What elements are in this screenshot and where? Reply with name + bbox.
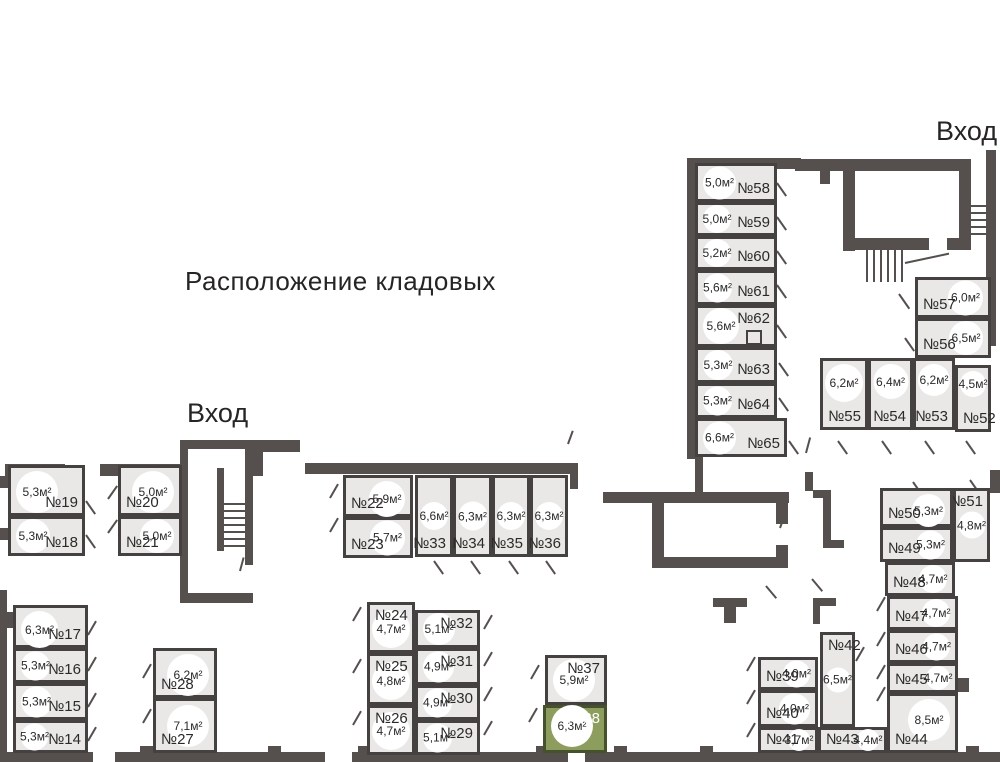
storage-unit-46[interactable]: 4,7м²№46 xyxy=(887,630,958,663)
unit-number: №38 xyxy=(567,711,600,726)
area-text: 6,5м² xyxy=(823,673,852,687)
unit-number: №14 xyxy=(48,732,81,747)
storage-unit-62[interactable]: 5,6м²№62 xyxy=(695,305,777,347)
door-swing xyxy=(778,362,789,376)
door-swing xyxy=(746,690,756,705)
storage-unit-63[interactable]: 5,3м²№63 xyxy=(695,347,777,383)
storage-unit-36[interactable]: 6,3м²№36 xyxy=(530,475,568,557)
area-badge: 5,3м² xyxy=(703,386,732,415)
unit-number: №60 xyxy=(737,249,770,264)
unit-number: №26 xyxy=(375,711,408,726)
door-swing xyxy=(142,664,152,679)
storage-unit-45[interactable]: 4,7м²№45 xyxy=(887,663,958,693)
door-swing xyxy=(329,484,339,499)
wall xyxy=(217,468,224,551)
storage-unit-49[interactable]: 5,3м²№49 xyxy=(880,527,953,562)
area-badge: 5,0м² xyxy=(703,205,731,233)
wall xyxy=(0,752,93,762)
unit-number: №61 xyxy=(737,284,770,299)
door-swing xyxy=(329,518,339,533)
area-badge: 5,3м² xyxy=(21,651,50,680)
storage-unit-39[interactable]: 4,0м²№39 xyxy=(758,657,818,690)
unit-number: №40 xyxy=(766,706,799,721)
storage-unit-50[interactable]: 5,3м²№50 xyxy=(880,488,953,527)
wall xyxy=(570,463,578,489)
door-swing xyxy=(142,709,152,724)
area-text: 6,3м² xyxy=(535,509,564,523)
unit-number: №29 xyxy=(440,726,473,741)
unit-number: №53 xyxy=(915,409,948,424)
door-swing xyxy=(567,431,574,445)
area-text: 5,3м² xyxy=(22,695,51,709)
wall xyxy=(823,540,844,548)
door-swing xyxy=(876,597,886,612)
door-swing xyxy=(876,665,886,680)
wall xyxy=(115,752,325,762)
door-swing xyxy=(876,687,886,702)
storage-unit-17[interactable]: 6,3м²№17 xyxy=(13,605,88,648)
unit-number: №63 xyxy=(737,362,770,377)
wall xyxy=(957,678,969,692)
door-swing xyxy=(530,665,540,680)
door-symbol xyxy=(746,330,762,345)
storage-unit-26[interactable]: 4,7м²№26 xyxy=(367,705,415,755)
unit-number: №36 xyxy=(528,536,561,551)
stairs xyxy=(962,205,991,239)
area-text: 6,5м² xyxy=(952,331,981,345)
door-swing xyxy=(483,687,493,702)
wall xyxy=(713,598,747,607)
area-badge: 6,3м² xyxy=(458,502,487,531)
door-swing xyxy=(87,657,97,672)
area-badge: 6,5м² xyxy=(825,667,850,692)
unit-number: №19 xyxy=(45,495,78,510)
door-swing xyxy=(905,253,949,264)
door-swing xyxy=(904,337,915,351)
wall xyxy=(140,746,153,753)
unit-number: №42 xyxy=(828,638,861,653)
area-badge: 6,3м² xyxy=(497,502,525,530)
door-swing xyxy=(811,578,823,592)
area-text: 5,3м² xyxy=(21,659,50,673)
area-text: 5,0м² xyxy=(703,212,732,226)
wall xyxy=(180,440,253,449)
unit-number: №34 xyxy=(452,536,485,551)
wall xyxy=(614,746,627,753)
door-swing xyxy=(483,652,493,667)
storage-unit-15[interactable]: 5,3м²№15 xyxy=(13,683,88,720)
door-swing xyxy=(776,284,787,298)
storage-unit-60[interactable]: 5,2м²№60 xyxy=(695,236,777,270)
wall xyxy=(820,598,836,606)
unit-number: №51 xyxy=(950,494,983,509)
door-swing xyxy=(87,693,97,708)
storage-unit-23[interactable]: 5,7м²№23 xyxy=(343,517,413,558)
door-swing xyxy=(87,727,97,742)
unit-number: №46 xyxy=(895,642,928,657)
area-badge: 4,7м² xyxy=(926,666,950,690)
area-text: 5,3м² xyxy=(704,358,733,372)
storage-unit-44[interactable]: 8,5м²№44 xyxy=(887,693,958,753)
door-swing xyxy=(776,216,787,230)
unit-number: №31 xyxy=(440,654,473,669)
unit-number: №64 xyxy=(737,397,770,412)
storage-unit-31[interactable]: 4,9м²№31 xyxy=(415,648,480,685)
area-text: 5,0м² xyxy=(705,176,734,190)
wall xyxy=(805,472,813,491)
wall xyxy=(823,490,831,541)
door-swing xyxy=(239,557,245,571)
wall xyxy=(813,598,820,624)
storage-unit-30[interactable]: 4,9м²№30 xyxy=(415,685,480,720)
area-badge: 4,8м² xyxy=(958,512,985,539)
storage-unit-24[interactable]: 4,7м²№24 xyxy=(367,602,415,653)
storage-unit-19[interactable]: 5,3м²№19 xyxy=(8,465,85,516)
door-swing xyxy=(746,657,756,672)
entrance-label-top-right: Вход xyxy=(936,116,997,147)
storage-unit-37[interactable]: 5,9м²№37 xyxy=(545,655,607,705)
unit-number: №15 xyxy=(48,699,81,714)
area-text: 5,6м² xyxy=(703,281,732,295)
unit-number: №55 xyxy=(828,409,861,424)
unit-number: №56 xyxy=(923,337,956,352)
door-swing xyxy=(805,437,811,453)
door-swing xyxy=(837,440,848,454)
storage-unit-59[interactable]: 5,0м²№59 xyxy=(695,202,777,236)
page-title: Расположение кладовых xyxy=(185,266,496,297)
door-swing xyxy=(776,324,787,338)
unit-number: №65 xyxy=(747,436,780,451)
unit-number: №20 xyxy=(126,495,159,510)
wall xyxy=(990,470,1000,493)
storage-unit-29[interactable]: 5,1м²№29 xyxy=(415,720,480,755)
area-text: 8,5м² xyxy=(915,713,944,727)
door-swing xyxy=(778,397,789,411)
unit-number: №18 xyxy=(45,535,78,550)
door-swing xyxy=(776,182,787,196)
area-text: 6,2м² xyxy=(920,373,949,387)
storage-unit-40[interactable]: 4,0м²№40 xyxy=(758,690,818,727)
door-swing xyxy=(483,721,493,736)
storage-unit-18[interactable]: 5,3м²№18 xyxy=(8,516,85,556)
unit-number: №54 xyxy=(873,409,906,424)
area-text: 6,3м² xyxy=(497,509,526,523)
storage-unit-43[interactable]: 4,4м²№43 xyxy=(818,727,887,753)
door-swing xyxy=(924,440,935,454)
unit-number: №48 xyxy=(893,575,926,590)
unit-number: №57 xyxy=(923,297,956,312)
wall xyxy=(724,607,736,623)
storage-unit-34[interactable]: 6,3м²№34 xyxy=(453,475,492,557)
area-text: 6,6м² xyxy=(420,509,449,523)
floor-plan: Расположение кладовых Вход Вход 5,0м²№58… xyxy=(0,0,1000,762)
door-swing xyxy=(107,485,118,499)
unit-number: №17 xyxy=(48,627,81,642)
area-text: 5,2м² xyxy=(703,246,732,260)
area-badge: 4,4м² xyxy=(857,729,879,751)
door-swing xyxy=(85,500,96,514)
door-swing xyxy=(107,519,118,533)
storage-unit-38[interactable]: 6,3м²№38 xyxy=(543,705,607,753)
door-swing xyxy=(433,560,444,574)
unit-number: №52 xyxy=(963,411,996,426)
door-swing xyxy=(788,440,799,454)
area-text: 6,3м² xyxy=(458,509,487,523)
area-badge: 5,6м² xyxy=(703,308,739,344)
storage-unit-35[interactable]: 6,3м²№35 xyxy=(492,475,530,557)
door-swing xyxy=(508,560,519,574)
storage-unit-54[interactable]: 6,4м²№54 xyxy=(868,358,913,430)
area-badge: 5,0м² xyxy=(703,166,736,199)
area-text: 4,5м² xyxy=(959,377,988,391)
storage-unit-51[interactable]: 4,8м²№51 xyxy=(953,488,990,562)
unit-number: №24 xyxy=(375,608,408,623)
storage-unit-56[interactable]: 6,5м²№56 xyxy=(915,318,991,358)
door-swing xyxy=(776,250,787,264)
wall xyxy=(966,746,979,753)
door-swing xyxy=(965,440,976,454)
unit-number: №32 xyxy=(440,616,473,631)
door-swing xyxy=(352,711,362,726)
wall xyxy=(776,545,788,568)
unit-number: №30 xyxy=(440,691,473,706)
storage-unit-52[interactable]: 4,5м²№52 xyxy=(955,365,991,432)
unit-number: №21 xyxy=(126,535,159,550)
entrance-label-left: Вход xyxy=(187,398,248,429)
wall xyxy=(603,492,789,503)
unit-number: №50 xyxy=(888,506,921,521)
unit-number: №62 xyxy=(737,311,770,326)
stairs xyxy=(866,244,903,282)
storage-unit-32[interactable]: 5,1м²№32 xyxy=(415,610,480,648)
storage-unit-42[interactable]: 6,5м²№42 xyxy=(820,632,855,727)
wall xyxy=(652,557,788,568)
wall xyxy=(700,746,713,753)
door-swing xyxy=(470,560,481,574)
area-text: 6,4м² xyxy=(876,375,905,389)
area-badge: 6,6м² xyxy=(703,421,736,454)
unit-number: №47 xyxy=(895,609,928,624)
wall xyxy=(820,171,830,184)
storage-unit-27[interactable]: 7,1м²№27 xyxy=(153,698,217,753)
area-text: 5,3м² xyxy=(19,529,48,543)
wall xyxy=(253,452,263,476)
unit-number: №35 xyxy=(490,536,523,551)
storage-unit-57[interactable]: 6,0м²№57 xyxy=(915,277,991,318)
storage-unit-20[interactable]: 5,0м²№20 xyxy=(118,465,182,516)
area-text: 5,6м² xyxy=(707,319,736,333)
wall xyxy=(795,159,971,171)
storage-unit-25[interactable]: 4,8м²№25 xyxy=(367,653,415,705)
unit-number: №22 xyxy=(351,496,384,511)
door-swing xyxy=(898,293,910,309)
area-text: 4,8м² xyxy=(377,674,406,688)
door-swing xyxy=(483,615,493,630)
wall xyxy=(0,590,7,755)
unit-number: №37 xyxy=(567,661,600,676)
area-text: 4,8м² xyxy=(957,518,986,532)
area-badge: 6,3м² xyxy=(535,502,563,530)
unit-number: №43 xyxy=(826,732,859,747)
area-text: 6,2м² xyxy=(830,376,859,390)
stairs xyxy=(224,503,253,550)
storage-unit-61[interactable]: 5,6м²№61 xyxy=(695,270,777,305)
door-swing xyxy=(87,621,97,636)
wall xyxy=(268,746,281,753)
door-swing xyxy=(765,585,777,599)
unit-number: №33 xyxy=(413,536,446,551)
storage-unit-16[interactable]: 5,3м²№16 xyxy=(13,648,88,683)
area-text: 5,3м² xyxy=(20,730,49,744)
storage-unit-14[interactable]: 5,3м²№14 xyxy=(13,720,88,753)
unit-number: №49 xyxy=(888,541,921,556)
storage-unit-64[interactable]: 5,3м²№64 xyxy=(695,383,777,418)
storage-unit-53[interactable]: 6,2м²№53 xyxy=(913,358,955,430)
area-badge: 5,6м² xyxy=(703,273,732,302)
unit-number: №58 xyxy=(737,181,770,196)
storage-unit-33[interactable]: 6,6м²№33 xyxy=(415,475,453,557)
area-badge: 5,3м² xyxy=(21,723,48,750)
storage-unit-22[interactable]: 5,9м²№22 xyxy=(343,475,413,517)
area-text: 6,6м² xyxy=(705,431,734,445)
unit-number: №45 xyxy=(895,672,928,687)
wall xyxy=(0,476,8,488)
wall xyxy=(305,463,578,474)
area-badge: 5,3м² xyxy=(703,350,733,380)
door-swing xyxy=(545,560,556,574)
area-badge: 4,5м² xyxy=(960,371,986,397)
area-badge: 6,6м² xyxy=(420,502,448,530)
unit-number: №27 xyxy=(161,732,194,747)
area-text: 5,3м² xyxy=(703,394,732,408)
door-swing xyxy=(85,534,96,548)
area-badge: 6,2м² xyxy=(918,364,950,396)
storage-unit-58[interactable]: 5,0м²№58 xyxy=(695,163,777,202)
area-badge: 5,2м² xyxy=(703,239,731,267)
unit-number: №59 xyxy=(737,215,770,230)
wall xyxy=(253,440,300,452)
storage-unit-47[interactable]: 4,7м²№47 xyxy=(887,596,958,630)
storage-unit-55[interactable]: 6,2м²№55 xyxy=(820,358,868,430)
storage-unit-65[interactable]: 6,6м²№65 xyxy=(695,418,787,457)
unit-number: №28 xyxy=(161,677,194,692)
storage-unit-21[interactable]: 5,0м²№21 xyxy=(118,516,182,556)
area-text: 4,7м² xyxy=(377,622,406,636)
area-badge: 6,4м² xyxy=(873,364,908,399)
unit-number: №16 xyxy=(48,662,81,677)
door-swing xyxy=(528,708,538,723)
unit-number: №25 xyxy=(375,659,408,674)
area-text: 4,7м² xyxy=(924,671,953,685)
door-swing xyxy=(876,632,886,647)
unit-number: №23 xyxy=(351,537,384,552)
wall xyxy=(180,593,253,603)
storage-unit-28[interactable]: 6,2м²№28 xyxy=(153,648,217,698)
door-swing xyxy=(881,440,892,454)
door-swing xyxy=(352,659,362,674)
storage-unit-48[interactable]: 4,7м²№48 xyxy=(885,562,955,596)
area-badge: 6,2м² xyxy=(825,364,863,402)
unit-number: №44 xyxy=(895,732,928,747)
wall xyxy=(0,528,8,540)
wall xyxy=(585,752,1000,762)
storage-unit-41[interactable]: 3,7м²№41 xyxy=(758,727,818,753)
door-swing xyxy=(352,607,362,622)
unit-number: №41 xyxy=(766,732,799,747)
unit-number: №39 xyxy=(766,669,799,684)
door-swing xyxy=(746,723,756,738)
